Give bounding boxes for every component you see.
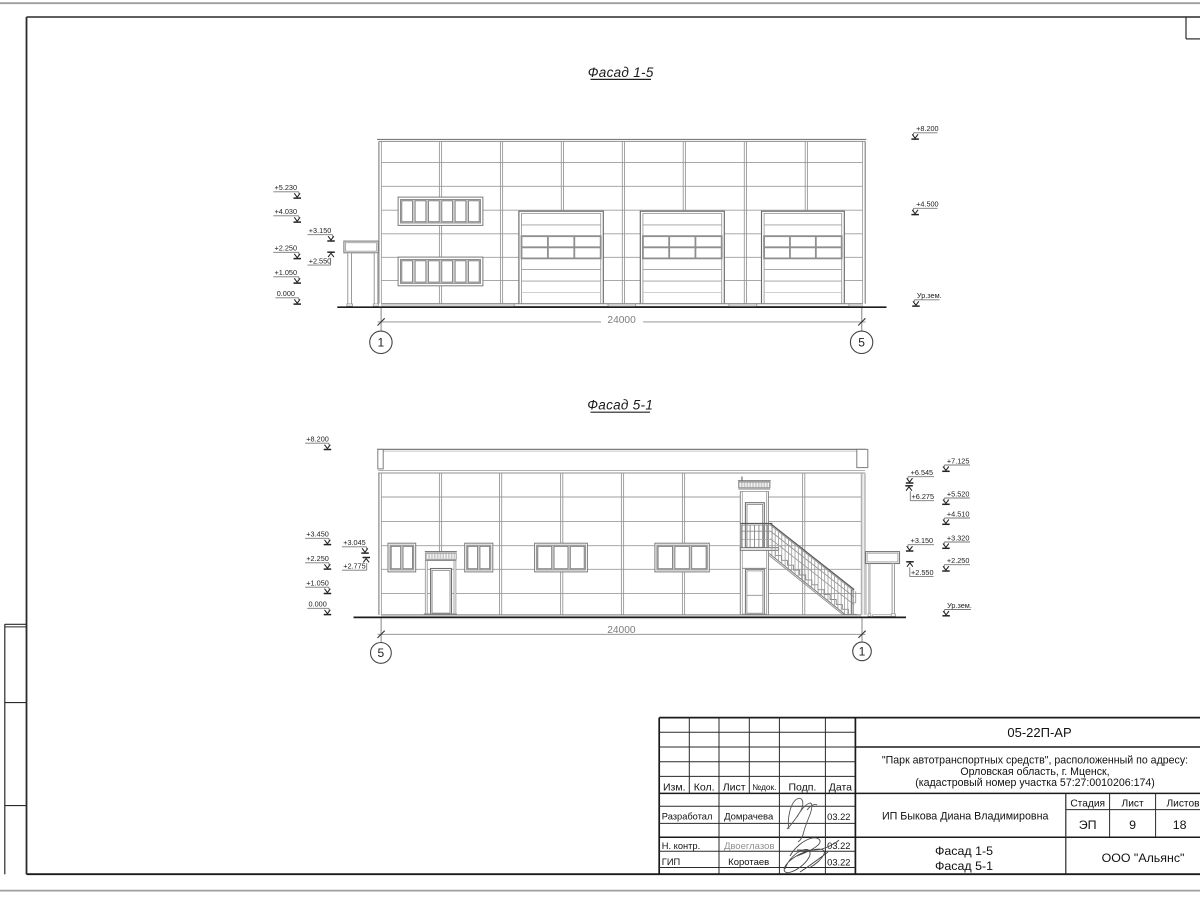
svg-text:Ур.зем.: Ур.зем.: [917, 291, 942, 300]
svg-text:+5.520: +5.520: [947, 489, 970, 498]
svg-text:Разработал: Разработал: [662, 812, 713, 822]
svg-text:ЭП: ЭП: [1079, 818, 1097, 832]
svg-text:1: 1: [859, 645, 866, 659]
svg-text:Н. контр.: Н. контр.: [662, 841, 700, 851]
svg-text:24000: 24000: [607, 625, 636, 636]
svg-text:Орловская область, г. Мценск,: Орловская область, г. Мценск,: [960, 766, 1109, 778]
svg-text:+1.050: +1.050: [306, 579, 329, 588]
svg-text:24000: 24000: [607, 315, 636, 326]
svg-text:+4.510: +4.510: [947, 509, 970, 518]
svg-text:+2.550: +2.550: [309, 257, 332, 266]
svg-text:0.000: 0.000: [309, 600, 327, 609]
svg-text:Коротаев: Коротаев: [728, 857, 769, 868]
svg-text:5: 5: [378, 646, 385, 660]
svg-text:+3.150: +3.150: [309, 226, 332, 235]
svg-text:Подп.: Подп.: [788, 781, 816, 793]
svg-text:05-22П-АР: 05-22П-АР: [1007, 725, 1071, 740]
svg-text:+5.230: +5.230: [275, 183, 298, 192]
svg-text:Кол.: Кол.: [694, 781, 715, 793]
svg-text:Ур.зем.: Ур.зем.: [947, 601, 972, 610]
svg-text:18: 18: [1173, 818, 1187, 832]
svg-text:Фасад 5-1: Фасад 5-1: [935, 859, 993, 873]
svg-text:5: 5: [858, 336, 865, 350]
svg-text:ООО "Альянс": ООО "Альянс": [1102, 851, 1185, 865]
svg-text:Фасад 1-5: Фасад 1-5: [935, 844, 993, 858]
svg-text:+2.250: +2.250: [947, 556, 970, 565]
svg-text:+2.550: +2.550: [911, 568, 934, 577]
svg-text:Стадия: Стадия: [1070, 798, 1105, 809]
svg-text:9: 9: [1129, 818, 1136, 832]
svg-text:03.22: 03.22: [827, 857, 850, 867]
svg-text:+3.045: +3.045: [343, 538, 366, 547]
svg-text:+8.200: +8.200: [306, 435, 329, 444]
svg-text:Листов: Листов: [1166, 798, 1199, 809]
svg-text:+6.275: +6.275: [912, 492, 935, 501]
svg-text:+2.250: +2.250: [275, 244, 298, 253]
svg-text:ГИП: ГИП: [662, 857, 680, 867]
svg-text:1: 1: [378, 336, 385, 350]
svg-text:03.22: 03.22: [827, 812, 850, 822]
svg-text:+4.030: +4.030: [275, 207, 298, 216]
svg-text:+6.545: +6.545: [911, 468, 934, 477]
svg-text:+3.450: +3.450: [306, 530, 329, 539]
svg-text:Лист: Лист: [723, 781, 746, 793]
svg-text:Фасад 1-5: Фасад 1-5: [588, 65, 654, 80]
svg-text:Дата: Дата: [829, 781, 852, 793]
svg-text:+4.500: +4.500: [916, 200, 939, 209]
svg-text:+1.050: +1.050: [275, 268, 298, 277]
svg-text:Двоеглазов: Двоеглазов: [724, 841, 775, 852]
svg-text:0.000: 0.000: [277, 289, 295, 298]
svg-text:Домрачева: Домрачева: [724, 812, 774, 823]
svg-text:Изм.: Изм.: [663, 781, 686, 793]
svg-text:(кадастровый номер участка 57:: (кадастровый номер участка 57:27:0010206…: [915, 777, 1155, 789]
svg-text:+3.150: +3.150: [911, 536, 934, 545]
svg-text:+7.125: +7.125: [947, 456, 970, 465]
svg-text:"Парк автотранспортных средств: "Парк автотранспортных средств", располо…: [882, 755, 1188, 767]
svg-text:Фасад 5-1: Фасад 5-1: [587, 398, 653, 413]
svg-text:+2.250: +2.250: [306, 554, 329, 563]
svg-text:+2.775: +2.775: [343, 562, 366, 571]
svg-text:+8.200: +8.200: [916, 124, 939, 133]
svg-text:ИП Быкова Диана Владимировна: ИП Быкова Диана Владимировна: [882, 810, 1049, 822]
svg-text:Лист: Лист: [1122, 798, 1144, 809]
svg-text:+3.320: +3.320: [947, 533, 970, 542]
svg-text:№док.: №док.: [752, 782, 776, 792]
